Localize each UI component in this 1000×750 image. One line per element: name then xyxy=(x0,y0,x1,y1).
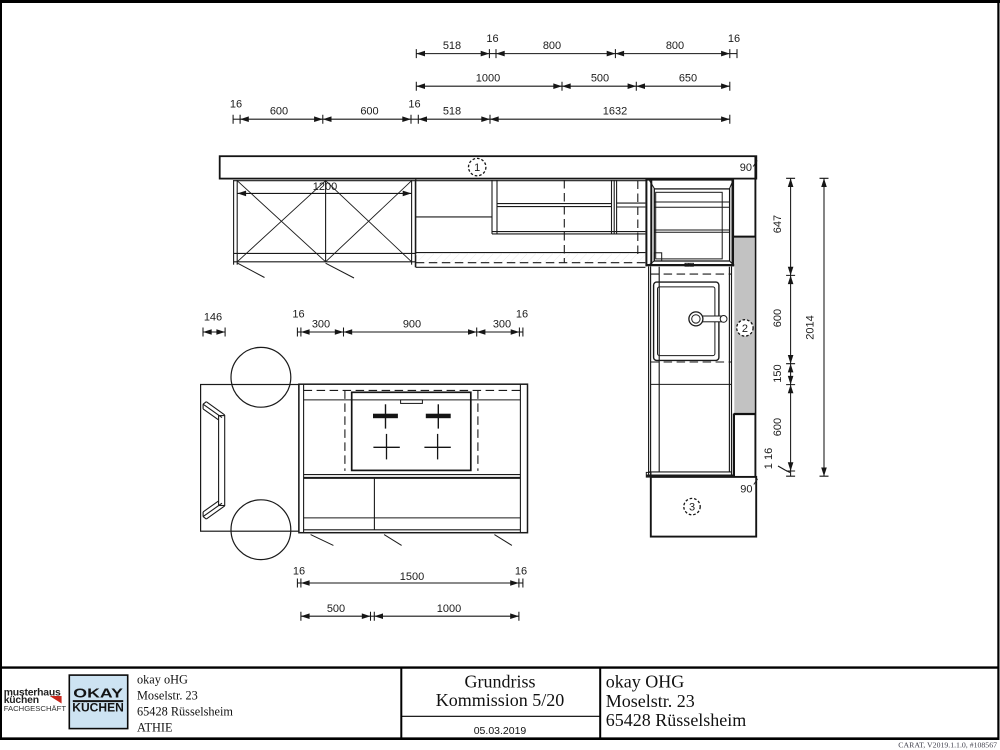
svg-text:300: 300 xyxy=(312,318,330,330)
svg-text:800: 800 xyxy=(543,40,561,52)
svg-text:1: 1 xyxy=(474,162,480,174)
svg-text:518: 518 xyxy=(443,106,461,118)
svg-text:16: 16 xyxy=(292,308,304,320)
svg-text:600: 600 xyxy=(270,106,288,118)
svg-text:16: 16 xyxy=(230,99,242,111)
svg-text:500: 500 xyxy=(591,73,609,85)
svg-text:16: 16 xyxy=(408,99,420,111)
svg-text:16: 16 xyxy=(293,566,305,578)
svg-text:1500: 1500 xyxy=(400,571,424,583)
svg-text:okay OHG: okay OHG xyxy=(606,672,685,692)
svg-text:3: 3 xyxy=(689,502,695,514)
svg-text:Moselstr. 23: Moselstr. 23 xyxy=(606,691,695,711)
svg-text:okay oHG: okay oHG xyxy=(137,673,188,687)
svg-text:OKAY: OKAY xyxy=(73,687,123,701)
svg-text:FACHGESCHÄFT: FACHGESCHÄFT xyxy=(4,704,67,713)
svg-text:500: 500 xyxy=(327,603,345,615)
svg-text:Grundriss: Grundriss xyxy=(465,672,536,692)
svg-text:1000: 1000 xyxy=(437,603,461,615)
svg-text:600: 600 xyxy=(772,418,784,436)
svg-text:1000: 1000 xyxy=(476,73,500,85)
svg-text:1 16: 1 16 xyxy=(763,448,775,469)
svg-text:150: 150 xyxy=(772,364,784,382)
svg-text:65428 Rüsselsheim: 65428 Rüsselsheim xyxy=(606,710,747,730)
svg-text:16: 16 xyxy=(515,566,527,578)
svg-text:2: 2 xyxy=(742,323,748,335)
svg-text:300: 300 xyxy=(493,318,511,330)
svg-text:05.03.2019: 05.03.2019 xyxy=(474,725,527,737)
svg-text:ATHIE: ATHIE xyxy=(137,720,173,734)
svg-text:647: 647 xyxy=(772,215,784,233)
svg-text:800: 800 xyxy=(666,40,684,52)
svg-text:900: 900 xyxy=(403,318,421,330)
svg-text:600: 600 xyxy=(772,309,784,327)
svg-text:CARAT, V2019.1.1.0, #108567: CARAT, V2019.1.1.0, #108567 xyxy=(898,741,997,750)
svg-text:1200: 1200 xyxy=(313,181,337,193)
svg-text:600: 600 xyxy=(360,106,378,118)
svg-text:16: 16 xyxy=(516,308,528,320)
svg-text:1632: 1632 xyxy=(603,106,627,118)
svg-text:Kommission 5/20: Kommission 5/20 xyxy=(436,690,565,710)
svg-text:146: 146 xyxy=(204,312,222,324)
svg-text:518: 518 xyxy=(443,40,461,52)
svg-text:2014: 2014 xyxy=(805,315,817,339)
svg-text:65428 Rüsselsheim: 65428 Rüsselsheim xyxy=(137,704,233,718)
svg-text:KÜCHEN: KÜCHEN xyxy=(72,700,124,715)
svg-text:Moselstr. 23: Moselstr. 23 xyxy=(137,689,198,703)
svg-text:16: 16 xyxy=(728,33,740,45)
svg-text:90: 90 xyxy=(740,484,752,496)
svg-text:650: 650 xyxy=(679,73,697,85)
svg-text:16: 16 xyxy=(486,33,498,45)
svg-text:90: 90 xyxy=(740,162,752,174)
